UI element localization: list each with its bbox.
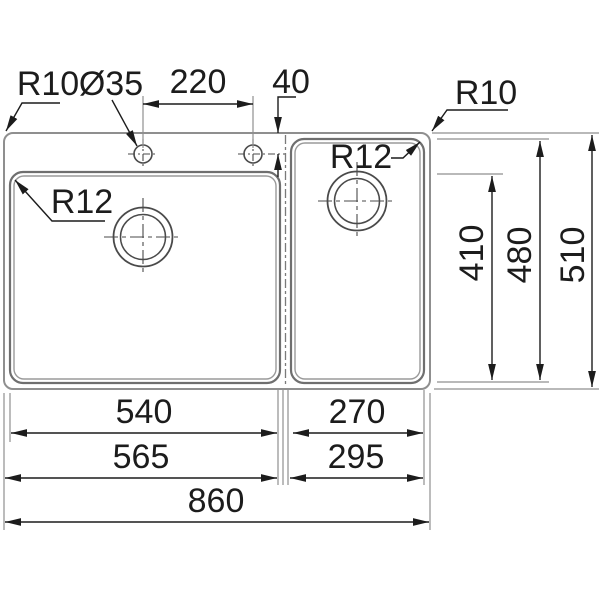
leader-dia35 xyxy=(112,100,137,146)
leader-r10-left xyxy=(6,103,60,131)
label-r10-right: R10 xyxy=(455,74,517,112)
left-bowl-drain xyxy=(104,198,182,276)
dimensions xyxy=(5,97,592,522)
label-565: 565 xyxy=(113,438,170,476)
label-510: 510 xyxy=(554,227,592,284)
dia35-leader-line xyxy=(112,100,137,146)
label-r12-right: R12 xyxy=(330,138,392,176)
dim-40-leader xyxy=(278,97,296,133)
label-270: 270 xyxy=(329,393,386,431)
r10-right-leader-line xyxy=(432,110,508,131)
label-r10-left: R10 xyxy=(17,65,79,103)
dim-tap-offset-40 xyxy=(278,97,296,177)
label-r12-left: R12 xyxy=(51,183,113,221)
dimension-labels: R10 Ø35 220 40 R10 R12 R12 410 480 510 5… xyxy=(17,63,592,520)
r10-left-leader-line xyxy=(6,103,60,131)
label-410: 410 xyxy=(453,225,491,282)
leader-r10-right xyxy=(432,110,508,131)
sink-dimension-drawing: R10 Ø35 220 40 R10 R12 R12 410 480 510 5… xyxy=(0,0,600,600)
drawing-canvas: R10 Ø35 220 40 R10 R12 R12 410 480 510 5… xyxy=(0,0,600,600)
label-295: 295 xyxy=(328,438,385,476)
label-860: 860 xyxy=(188,482,245,520)
label-540: 540 xyxy=(116,393,173,431)
label-dia35: Ø35 xyxy=(79,65,143,103)
label-480: 480 xyxy=(501,227,539,284)
label-40: 40 xyxy=(272,63,310,101)
label-220: 220 xyxy=(170,63,227,101)
